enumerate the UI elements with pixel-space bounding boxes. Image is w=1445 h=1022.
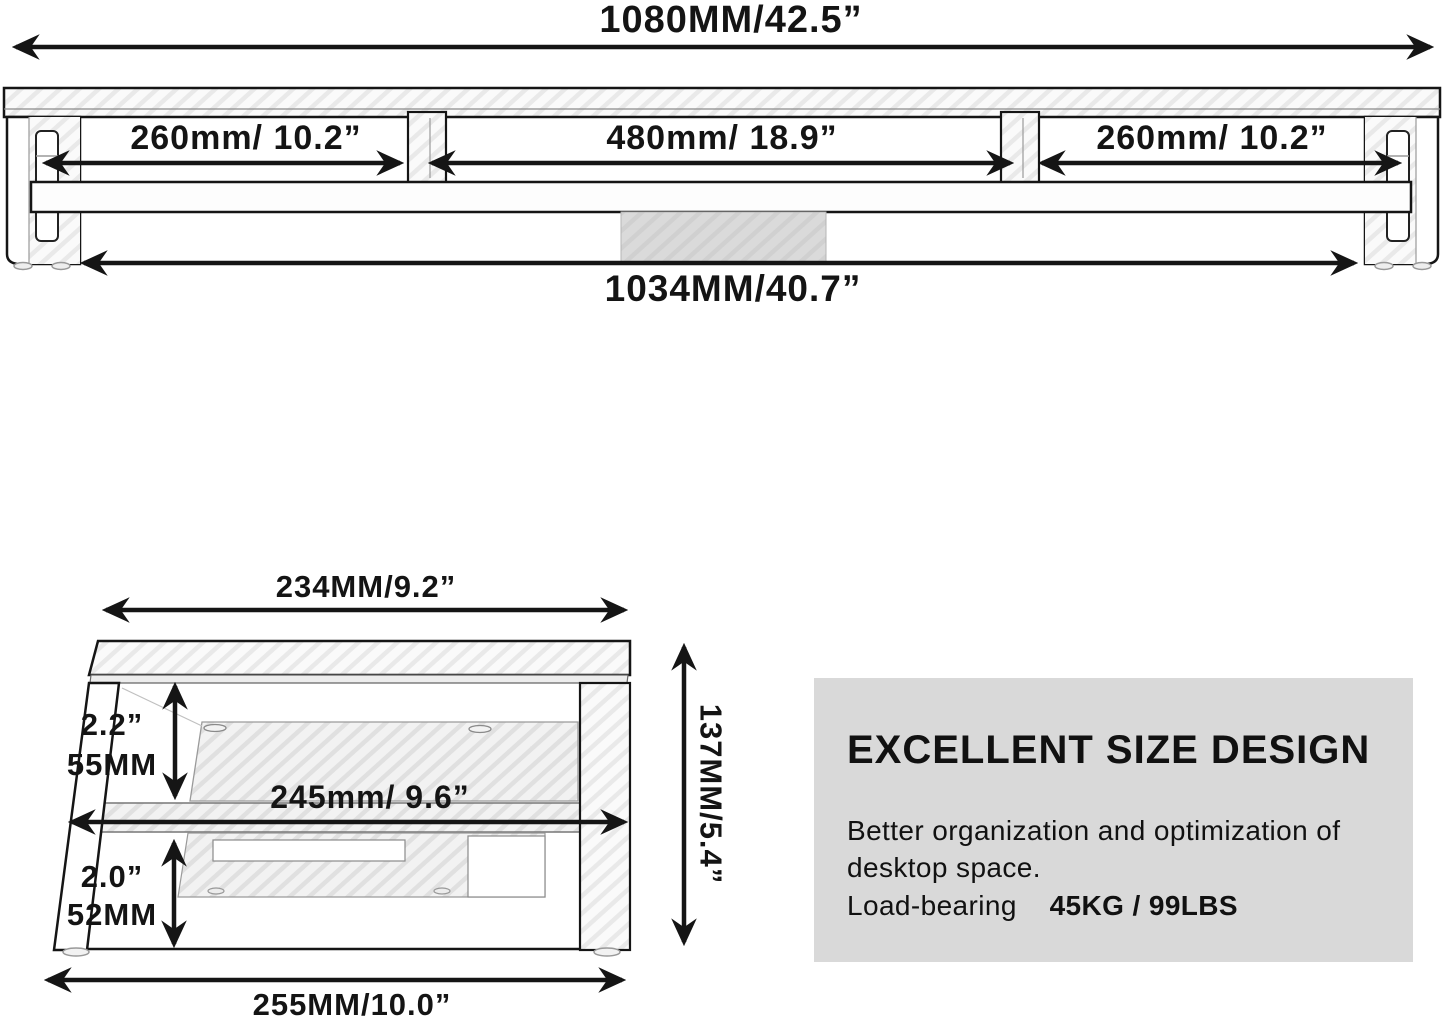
front-divider-post-left: [408, 112, 446, 183]
total-height-label: 137MM/5.4”: [696, 704, 727, 885]
screw-mark: [204, 725, 226, 732]
front-lower-shelf-bar: [31, 182, 1411, 212]
side-board-lip: [90, 675, 628, 683]
lower-gap-inch-label: 2.0”: [81, 861, 144, 892]
info-box: EXCELLENT SIZE DESIGN Better organizatio…: [814, 678, 1413, 962]
screw-mark: [469, 726, 491, 733]
middle-section-label: 480mm/ 18.9”: [606, 121, 837, 155]
side-lower-window: [468, 836, 545, 897]
inner-foot-mark: [434, 888, 450, 894]
side-lower-cutout: [213, 840, 405, 861]
right-section-label: 260mm/ 10.2”: [1096, 121, 1327, 155]
info-box-line1: Better organization and optimization of: [847, 817, 1340, 845]
right-leg-foot: [1375, 263, 1393, 270]
info-box-line3: Load-bearing 45KG / 99LBS: [847, 892, 1238, 920]
info-box-line2: desktop space.: [847, 854, 1041, 882]
lower-gap-mm-label: 52MM: [67, 899, 157, 930]
inner-foot-mark: [208, 888, 224, 894]
total-width-label: 1080MM/42.5”: [599, 1, 862, 39]
middle-width-label: 245mm/ 9.6”: [270, 781, 470, 813]
side-right-leg: [580, 683, 630, 950]
front-divider-post-right: [1001, 112, 1039, 183]
left-leg-foot: [52, 263, 70, 270]
front-center-support-block: [621, 212, 826, 262]
left-leg-foot: [14, 263, 32, 270]
upper-gap-mm-label: 55MM: [67, 749, 157, 780]
upper-gap-inch-label: 2.2”: [81, 709, 144, 740]
side-left-foot: [63, 948, 89, 956]
right-leg-foot: [1413, 263, 1431, 270]
left-section-label: 260mm/ 10.2”: [130, 121, 361, 155]
load-bearing-value: 45KG / 99LBS: [1050, 890, 1238, 921]
front-top-board: [4, 88, 1440, 117]
top-view-drawing: [4, 47, 1440, 270]
side-top-board: [89, 641, 630, 675]
bottom-width-label: 255MM/10.0”: [253, 989, 452, 1020]
load-bearing-label: Load-bearing: [847, 890, 1017, 921]
side-right-foot: [594, 948, 620, 956]
product-dimension-diagram: 1080MM/42.5” 260mm/ 10.2” 480mm/ 18.9” 2…: [0, 0, 1445, 1022]
info-box-heading: EXCELLENT SIZE DESIGN: [847, 730, 1370, 770]
side-top-width-label: 234MM/9.2”: [276, 571, 457, 602]
base-width-label: 1034MM/40.7”: [605, 270, 862, 307]
